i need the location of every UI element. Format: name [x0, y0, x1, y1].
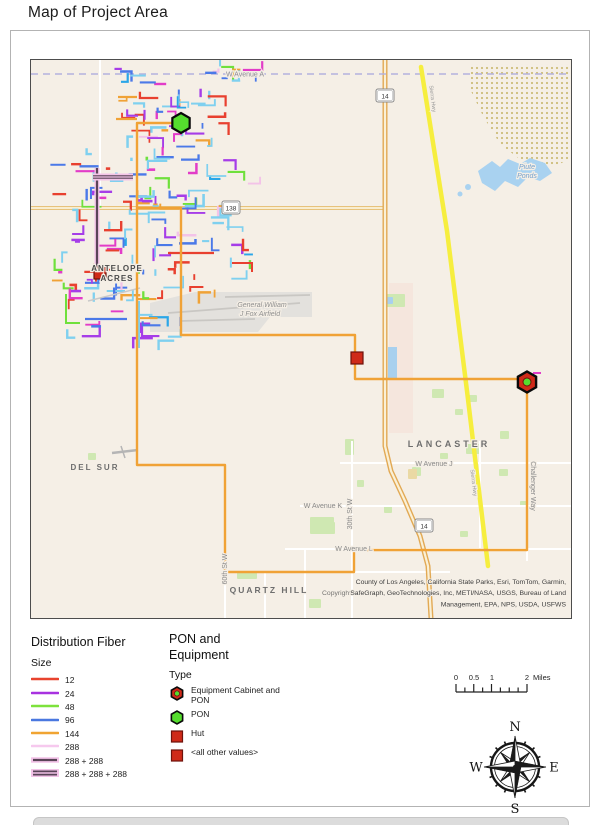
map-label: W Avenue J — [415, 461, 452, 468]
scrollbar[interactable] — [33, 817, 569, 825]
compass-rose: N S W E — [467, 717, 563, 817]
green-patch — [460, 531, 468, 537]
scale-unit-label: Miles — [533, 673, 551, 682]
map-label: Piute — [519, 164, 535, 171]
legend-equipment-item: <all other values> — [169, 748, 299, 763]
pon-icon — [172, 113, 189, 133]
scale-tick-label: 0 — [454, 673, 458, 682]
compass-point — [515, 761, 546, 767]
legend-equipment-item: Equipment Cabinet and PON — [169, 686, 299, 706]
legend-fiber-items: 12244896144288288 + 288288 + 288 + 288 — [31, 674, 127, 781]
green-patch — [440, 453, 448, 459]
green-patch — [455, 409, 463, 415]
legend-fiber-item-label: 288 — [65, 742, 79, 752]
attribution-overlay: Copyright: — [322, 590, 353, 597]
green-patch — [88, 453, 96, 460]
green-patch — [309, 599, 321, 608]
map-attribution: County of Los Angeles, California State … — [356, 579, 566, 586]
legend-fiber-item-label: 144 — [65, 729, 79, 739]
compass-tick — [532, 748, 534, 750]
legend-fiber-item-label: 288 + 288 + 288 — [65, 769, 127, 779]
pond-blob — [465, 184, 471, 190]
legend-equipment-item-label: PON — [191, 710, 209, 720]
tan-patch — [408, 469, 417, 479]
legend-fiber-item-label: 12 — [65, 675, 74, 685]
legend-fiber-item-label: 48 — [65, 702, 74, 712]
legend-equipment-item: Hut — [169, 729, 299, 744]
legend-equipment-item-label: Hut — [191, 729, 204, 739]
map-label: W Avenue A — [226, 72, 264, 79]
pon-icon — [169, 710, 185, 725]
legend-distribution-fiber: Distribution Fiber Size 1224489614428828… — [31, 635, 127, 781]
project-area-map: 1413814W Avenue AANTELOPEACRESDEL SURLAN… — [31, 60, 571, 618]
compass-tick — [496, 748, 498, 750]
compass-center — [513, 765, 517, 769]
map-label: J Fox Airfield — [239, 311, 281, 318]
map-label: Ponds — [517, 173, 537, 180]
hut-icon — [351, 352, 363, 364]
legend-equipment-item-label: Equipment Cabinet and PON — [191, 686, 296, 706]
map-label: QUARTZ HILL — [230, 585, 309, 595]
legend-fiber-item-label: 24 — [65, 689, 74, 699]
map-label: 30th St W — [347, 498, 354, 529]
scale-tick-label: 0.5 — [469, 673, 479, 682]
route-shield-label: 14 — [420, 524, 428, 531]
legend-equipment-items: Equipment Cabinet and PONPONHut<all othe… — [169, 686, 299, 763]
map-label: ACRES — [100, 274, 133, 283]
green-patch — [432, 389, 444, 398]
report-frame: 1413814W Avenue AANTELOPEACRESDEL SURLAN… — [10, 30, 590, 807]
water-rect — [388, 347, 397, 378]
report-page: Map of Project Area 1413814W Avenue AANT… — [0, 0, 600, 825]
map-attribution: SafeGraph, GeoTechnologies, Inc, METI/NA… — [350, 590, 566, 597]
map-label: W Avenue K — [304, 503, 343, 510]
map-background — [31, 60, 571, 618]
legend-equipment-item-label: <all other values> — [191, 748, 258, 758]
legend-fiber-subtitle: Size — [31, 657, 127, 669]
map-label: Challenger Way — [529, 461, 536, 511]
compass-s-label: S — [511, 802, 520, 817]
legend-fiber-item-label: 96 — [65, 715, 74, 725]
map-label: ANTELOPE — [91, 264, 143, 273]
equipment-cabinet-pon-icon — [523, 378, 531, 386]
map-label: 60th St W — [222, 553, 229, 584]
fiber-288288288-swatch-icon — [31, 765, 59, 783]
compass-point — [484, 767, 515, 773]
map-canvas: 1413814W Avenue AANTELOPEACRESDEL SURLAN… — [30, 59, 572, 619]
compass-w-label: W — [469, 761, 483, 776]
scale-tick-label: 1 — [490, 673, 494, 682]
hut-icon — [169, 748, 185, 763]
compass-point — [484, 761, 515, 767]
page-title: Map of Project Area — [28, 4, 168, 22]
green-patch — [499, 469, 508, 476]
route-shield-label: 138 — [226, 206, 237, 213]
route-shield-label: 14 — [381, 94, 389, 101]
legend-fiber-item-label: 288 + 288 — [65, 756, 103, 766]
pond-blob — [458, 192, 463, 197]
map-label: General William — [237, 302, 287, 309]
legend-equipment-subtitle: Type — [169, 669, 299, 681]
map-label: W Avenue L — [335, 546, 373, 553]
hut-icon — [169, 729, 185, 744]
compass-tick — [532, 784, 534, 786]
green-patch — [357, 480, 364, 487]
legend-fiber-title: Distribution Fiber — [31, 635, 127, 651]
compass-tick — [496, 784, 498, 786]
compass-n-label: N — [509, 720, 520, 735]
scale-bar: 00.512Miles — [447, 671, 587, 702]
cab-pon-icon — [169, 686, 185, 701]
map-label: DEL SUR — [71, 463, 120, 472]
green-patch — [313, 522, 335, 534]
compass-point — [515, 767, 521, 798]
map-attribution: Management, EPA, NPS, USDA, USFWS — [441, 601, 567, 608]
scale-tick-label: 2 — [525, 673, 529, 682]
legend-pon-equipment: PON and Equipment Type Equipment Cabinet… — [169, 632, 299, 767]
legend-equipment-title: PON and Equipment — [169, 632, 249, 663]
map-label: LANCASTER — [408, 439, 491, 449]
green-patch — [500, 431, 509, 439]
compass-e-label: E — [549, 761, 559, 776]
legend-fiber-item: 288 + 288 + 288 — [31, 767, 127, 780]
legend-equipment-item: PON — [169, 710, 299, 725]
